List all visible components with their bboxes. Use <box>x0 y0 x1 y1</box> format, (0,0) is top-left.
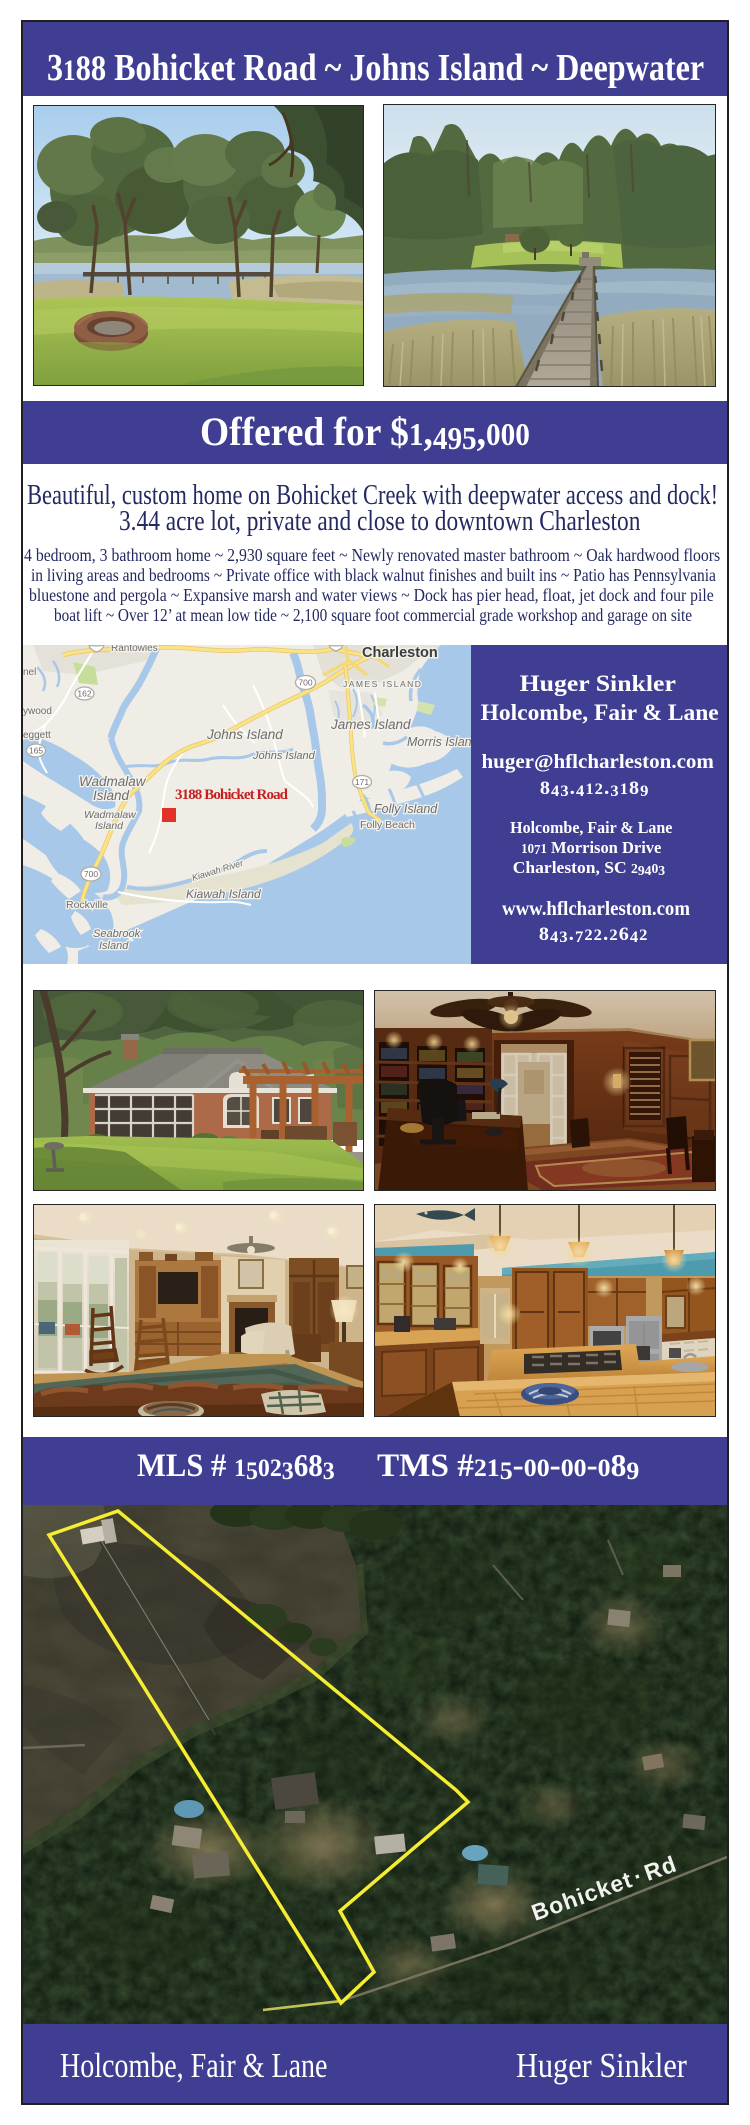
svg-text:700: 700 <box>298 678 312 688</box>
svg-text:Rockville: Rockville <box>66 899 108 911</box>
svg-text:nel: nel <box>23 667 36 678</box>
svg-text:Charleston: Charleston <box>362 645 438 661</box>
svg-text:Johns Island: Johns Island <box>252 750 316 762</box>
svg-text:Kiawah Island: Kiawah Island <box>186 887 261 901</box>
svg-text:Johns Island: Johns Island <box>206 727 283 742</box>
svg-text:Island: Island <box>93 788 130 803</box>
svg-text:Morris Island: Morris Island <box>407 735 471 749</box>
svg-text:3188 Bohicket Road: 3188 Bohicket Road <box>175 787 289 803</box>
svg-text:eggett: eggett <box>23 730 51 741</box>
svg-text:Rantowles: Rantowles <box>111 645 158 654</box>
svg-text:JAMES ISLAND: JAMES ISLAND <box>343 679 422 689</box>
svg-text:165: 165 <box>29 746 43 756</box>
svg-text:Seabrook: Seabrook <box>93 928 141 940</box>
svg-text:Folly Beach: Folly Beach <box>360 819 415 831</box>
svg-text:700: 700 <box>84 869 98 879</box>
svg-text:Folly Island: Folly Island <box>374 802 438 816</box>
svg-text:ywood: ywood <box>23 706 52 717</box>
svg-text:171: 171 <box>355 777 369 787</box>
svg-text:162: 162 <box>77 689 91 699</box>
svg-text:Wadmalaw: Wadmalaw <box>79 774 147 789</box>
svg-text:Island: Island <box>95 820 124 832</box>
svg-text:James Island: James Island <box>330 717 411 732</box>
svg-text:Island: Island <box>99 940 129 952</box>
